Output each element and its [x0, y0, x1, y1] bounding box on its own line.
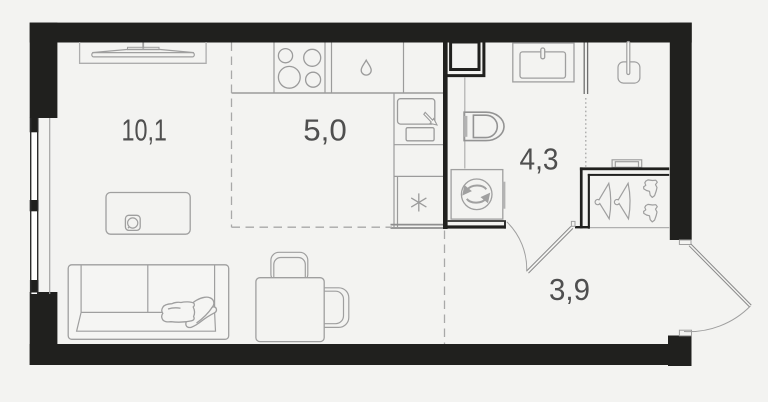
- svg-text:3,9: 3,9: [549, 272, 590, 307]
- svg-text:5,0: 5,0: [303, 112, 347, 147]
- svg-text:4,3: 4,3: [520, 141, 559, 176]
- svg-text:10,1: 10,1: [121, 112, 167, 147]
